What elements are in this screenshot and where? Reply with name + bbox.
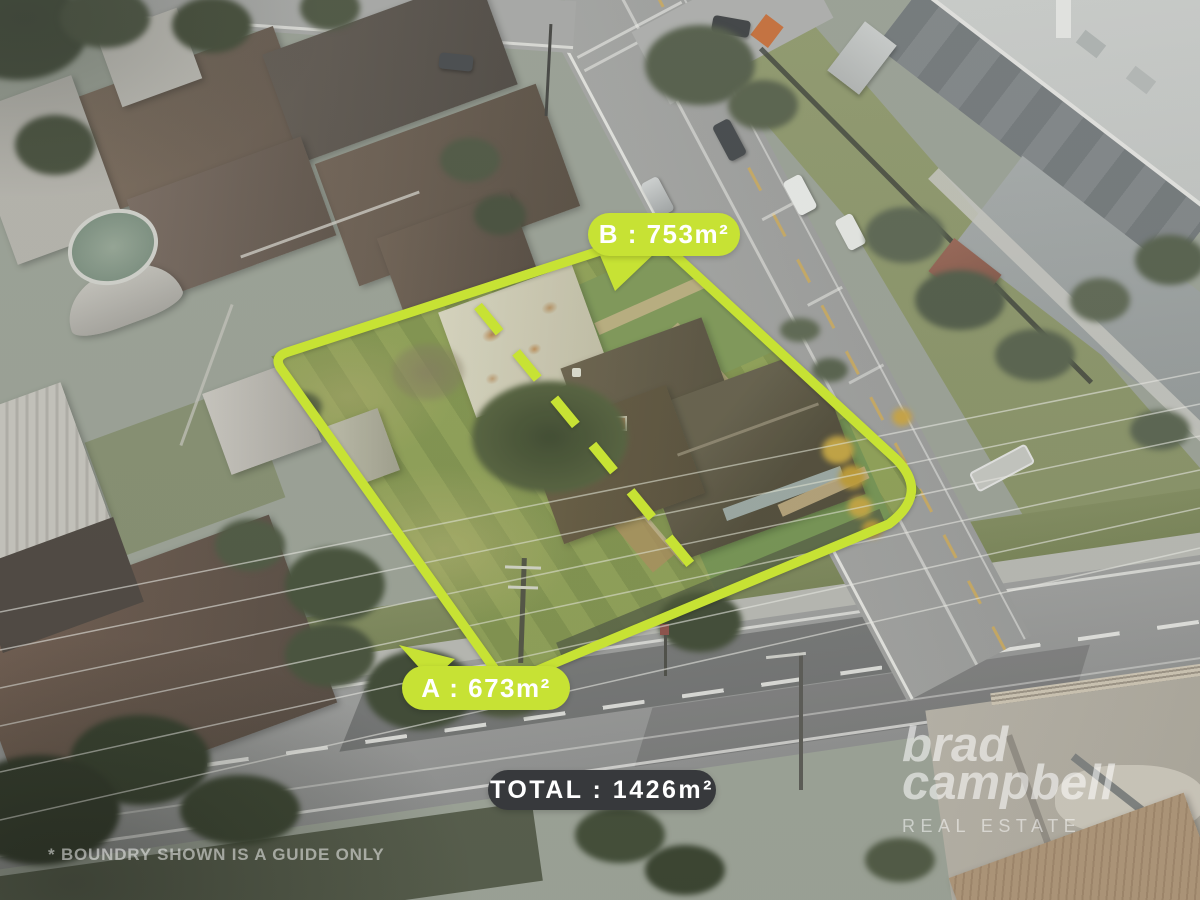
brand-logo: brad campbell REAL ESTATE (902, 726, 1192, 837)
boundary-outline (278, 234, 911, 682)
brand-name-line2: campbell (902, 764, 1192, 802)
parcel-a-area-label: A : 673m² (402, 666, 570, 710)
parcel-b-area-label: B : 753m² (588, 213, 740, 256)
total-area-text: TOTAL : 1426m² (490, 776, 714, 805)
brand-tagline: REAL ESTATE (902, 816, 1192, 837)
parcel-b-area-text: B : 753m² (599, 219, 730, 250)
boundary-disclaimer: * BOUNDRY SHOWN IS A GUIDE ONLY (48, 845, 385, 865)
parcel-a-area-text: A : 673m² (421, 673, 551, 704)
total-area-label: TOTAL : 1426m² (488, 770, 716, 810)
aerial-photo: B : 753m² A : 673m² TOTAL : 1426m² * BOU… (0, 0, 1200, 900)
